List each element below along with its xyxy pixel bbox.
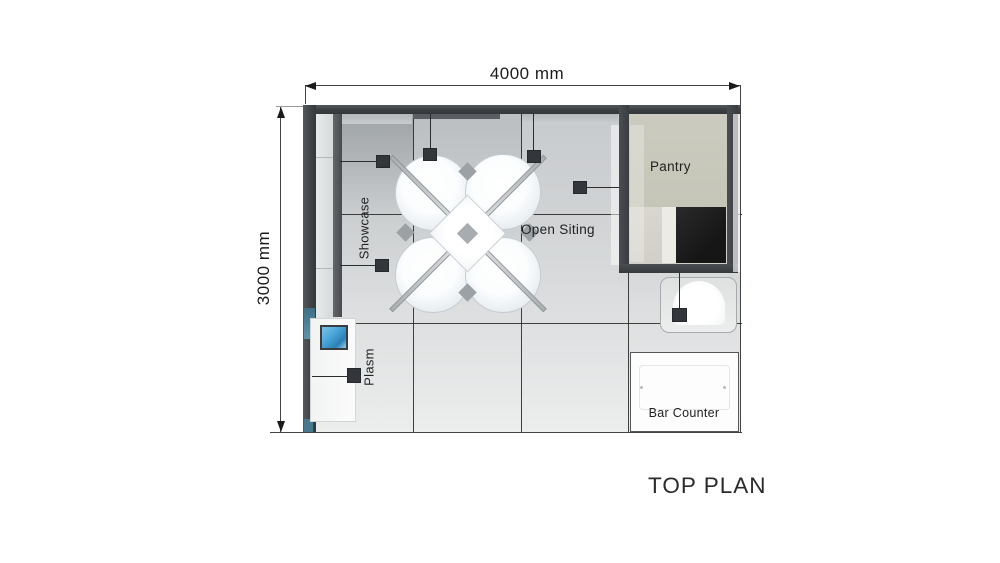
pantry-glass-strip-outer <box>611 125 619 265</box>
plan-boundary-right <box>740 85 741 432</box>
leader-showcase-bottom <box>340 265 376 266</box>
marker-plasma <box>347 368 361 383</box>
plasma-tv-screen <box>320 325 348 350</box>
pantry-glass-strip-inner <box>630 125 644 262</box>
dimension-left-arrow-bottom <box>277 421 285 432</box>
pantry-wall-bottom <box>619 264 738 273</box>
glass-panel-top-right <box>522 114 618 124</box>
dimension-left-arrow-top <box>277 107 285 118</box>
dimension-height-label: 3000 mm <box>254 231 274 305</box>
leader-pantry-door <box>679 273 680 309</box>
dimension-top-arrow-right <box>729 82 740 90</box>
dimension-top-line <box>305 85 740 86</box>
showcase-shelf-divider-1 <box>316 157 333 158</box>
showcase-unit-bar <box>333 114 342 317</box>
marker-showcase-bottom <box>375 259 389 272</box>
open-sitting-label: Open Siting <box>521 222 595 237</box>
top-plan-render: Bar Counter Showcase Open Siting Pantry … <box>0 0 1000 563</box>
marker-showcase-top <box>376 155 390 168</box>
pantry-counter-black <box>676 207 726 263</box>
pantry-label: Pantry <box>650 159 691 174</box>
bar-counter-dot-right <box>723 386 726 389</box>
bar-counter-label: Bar Counter <box>649 406 720 420</box>
wall-top <box>303 105 740 114</box>
showcase-shelf-divider-2 <box>316 268 333 269</box>
marker-pantry-door <box>672 308 687 322</box>
leader-plasma <box>312 376 348 377</box>
dimension-left-line <box>280 107 281 432</box>
pantry-counter-white <box>662 207 676 263</box>
dimension-left-extension-top <box>276 106 303 107</box>
dimension-top-arrow-left <box>305 82 316 90</box>
plan-boundary-bottom <box>270 432 742 433</box>
plan-title: TOP PLAN <box>648 473 766 499</box>
leader-pendant-ne <box>533 114 534 152</box>
leader-open-sitting <box>586 187 619 188</box>
glass-header-top-center <box>413 114 500 119</box>
marker-open-sitting <box>573 181 587 194</box>
bar-counter-inner-detail <box>639 365 730 410</box>
leader-pendant-nw <box>430 114 431 150</box>
bar-counter-dot-left <box>640 386 643 389</box>
leader-showcase-top <box>340 161 377 162</box>
dimension-top-extension-left <box>305 85 306 104</box>
marker-pendant-ne <box>527 150 541 163</box>
showcase-shelf-strip <box>316 114 333 320</box>
dimension-width-label: 4000 mm <box>490 64 564 84</box>
grid-line-vertical-3 <box>628 272 629 432</box>
marker-pendant-nw <box>423 148 437 161</box>
showcase-label: Showcase <box>357 197 372 259</box>
plasma-label: Plasm <box>362 348 377 386</box>
pantry-wall-left <box>619 105 629 273</box>
pantry-outer-right-band <box>733 114 740 272</box>
